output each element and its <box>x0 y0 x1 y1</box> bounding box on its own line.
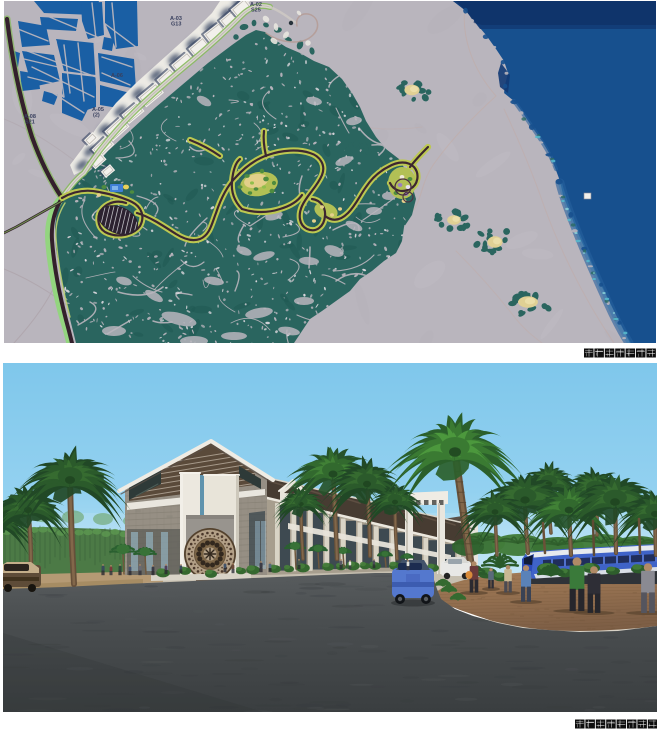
svg-text:(2): (2) <box>93 113 100 119</box>
svg-text:S21: S21 <box>25 120 35 126</box>
svg-text:S25: S25 <box>251 8 261 14</box>
svg-text:A-06: A-06 <box>111 73 123 79</box>
svg-text:G13: G13 <box>171 22 181 28</box>
